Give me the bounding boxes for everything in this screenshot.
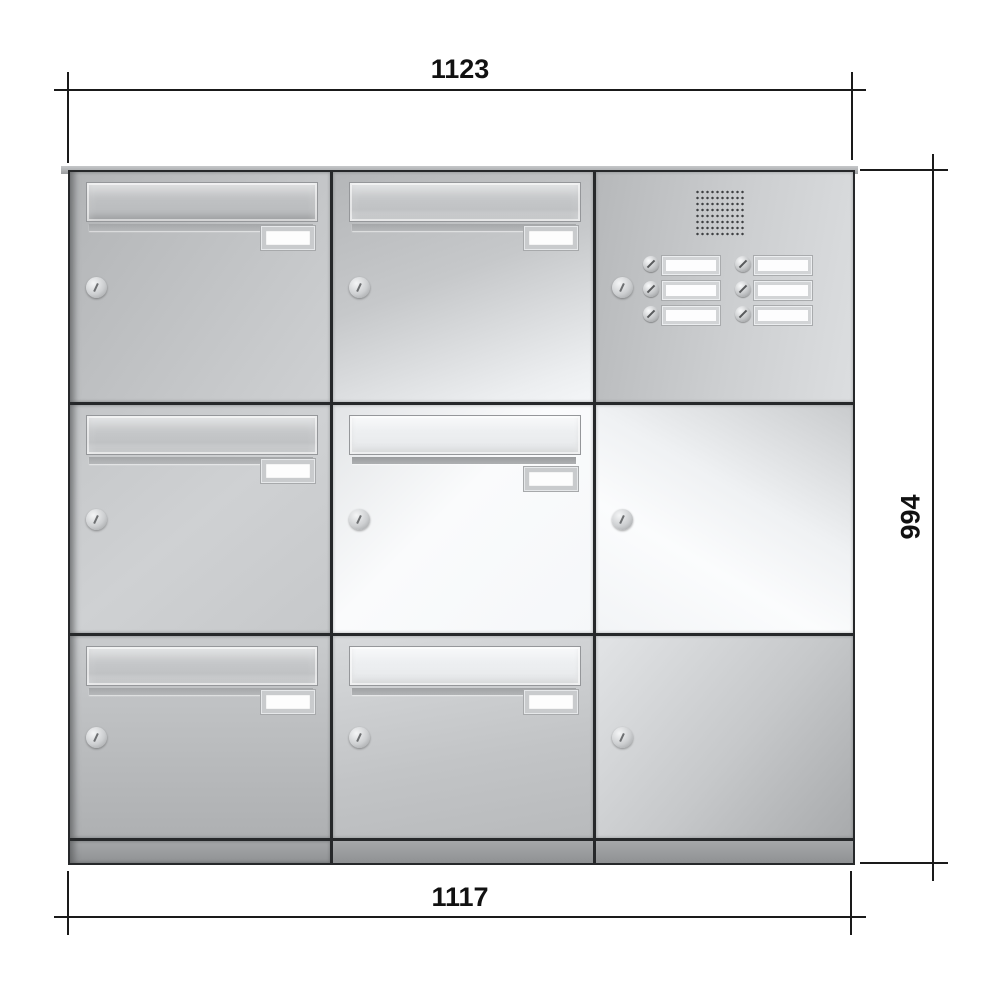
bottom-dimension-extension-right (850, 871, 852, 935)
blank-panel-r3c3 (596, 636, 853, 838)
name-plate (261, 226, 315, 250)
mailbox-door-r3c1 (70, 636, 330, 838)
bottom-dimension-label: 1117 (54, 884, 866, 911)
keyhole-icon (93, 283, 99, 292)
top-dimension-extension-right (851, 72, 853, 160)
mailbox-door-r1c1 (70, 172, 330, 402)
bottom-dimension-line (54, 916, 866, 918)
mailbox-door-r2c1 (70, 405, 330, 633)
keyhole-icon (619, 733, 625, 742)
technical-drawing: 1123 994 1117 (0, 0, 1000, 1000)
letter-flap (349, 182, 581, 222)
lock-icon (86, 509, 107, 530)
bell-name-plate-field (666, 285, 716, 296)
keyhole-icon (619, 515, 625, 524)
bell-button-slash (739, 260, 747, 268)
keyhole-icon (356, 515, 362, 524)
name-plate-field (266, 464, 310, 478)
bell-button-icon (643, 306, 659, 322)
bell-button-slash (739, 285, 747, 293)
keyhole-icon (619, 283, 625, 292)
bell-button-slash (647, 260, 655, 268)
keyhole-icon (93, 733, 99, 742)
bell-name-plate-field (666, 260, 716, 271)
letter-flap (349, 415, 581, 455)
mailbox-door-r1c2 (333, 172, 593, 402)
mailbox-unit (68, 170, 855, 865)
right-dimension-line (932, 154, 934, 881)
letter-flap (349, 646, 581, 686)
bell-name-plate (754, 256, 812, 275)
bell-name-plate-field (666, 310, 716, 321)
bell-name-plate-field (758, 285, 808, 296)
name-plate (261, 459, 315, 483)
bottom-body-band (70, 841, 330, 863)
lock-icon (612, 277, 633, 298)
bell-name-plate (754, 306, 812, 325)
name-plate-field (529, 231, 573, 245)
name-plate-field (266, 231, 310, 245)
lock-icon (86, 277, 107, 298)
name-plate-field (529, 695, 573, 709)
keyhole-icon (356, 283, 362, 292)
mailbox-door-r2c2 (333, 405, 593, 633)
letter-flap (86, 646, 318, 686)
bell-button-icon (735, 256, 751, 272)
lock-icon (349, 727, 370, 748)
bell-button-icon (735, 306, 751, 322)
name-plate (261, 690, 315, 714)
lock-icon (612, 727, 633, 748)
bottom-body-band (596, 841, 853, 863)
letter-flap-shadow (352, 457, 576, 464)
bell-button-slash (739, 310, 747, 318)
mailbox-door-r3c2 (333, 636, 593, 838)
letter-flap (86, 415, 318, 455)
bell-name-plate (754, 281, 812, 300)
keyhole-icon (93, 515, 99, 524)
intercom-panel (596, 172, 853, 402)
speaker-grille-icon (694, 188, 746, 238)
bell-name-plate-field (758, 310, 808, 321)
bottom-body-band (333, 841, 593, 863)
lock-icon (349, 509, 370, 530)
name-plate (524, 690, 578, 714)
bell-button-icon (735, 281, 751, 297)
right-dimension-tick-top (860, 169, 948, 171)
keyhole-icon (356, 733, 362, 742)
bell-button-icon (643, 281, 659, 297)
bell-button-slash (647, 310, 655, 318)
top-dimension-line (54, 89, 866, 91)
name-plate (524, 226, 578, 250)
bell-name-plate (662, 281, 720, 300)
bell-name-plate (662, 306, 720, 325)
blank-panel-r2c3 (596, 405, 853, 633)
lock-icon (612, 509, 633, 530)
letter-flap (86, 182, 318, 222)
top-dimension-extension-left (67, 72, 69, 163)
lock-icon (86, 727, 107, 748)
right-dimension-label: 994 (898, 494, 925, 539)
top-dimension-label: 1123 (54, 56, 866, 83)
bell-name-plate-field (758, 260, 808, 271)
bell-button-icon (643, 256, 659, 272)
bell-name-plate (662, 256, 720, 275)
right-dimension-tick-bottom (860, 862, 948, 864)
bell-button-slash (647, 285, 655, 293)
name-plate (524, 467, 578, 491)
bottom-dimension-extension-left (67, 871, 69, 935)
lock-icon (349, 277, 370, 298)
name-plate-field (266, 695, 310, 709)
name-plate-field (529, 472, 573, 486)
